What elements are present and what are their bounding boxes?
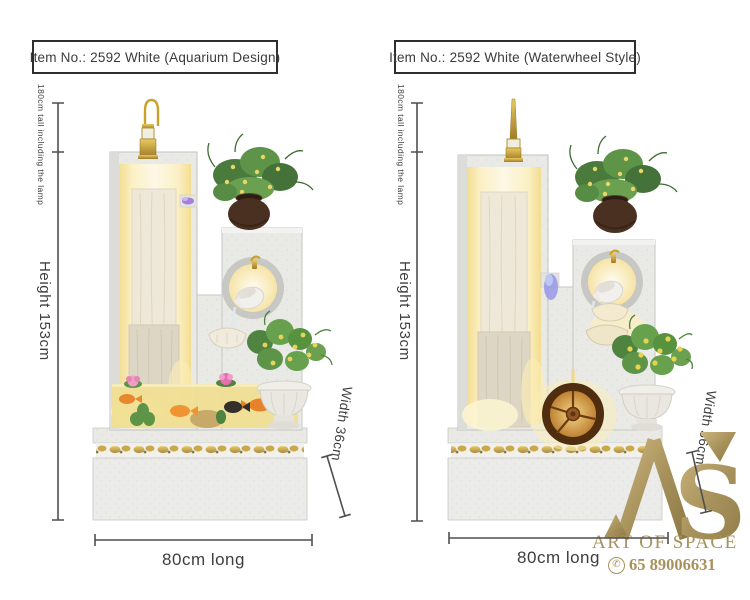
as-monogram-logo-icon: S — [596, 426, 744, 546]
item-title-left-text: Item No.: 2592 White (Aquarium Design) — [30, 50, 281, 65]
potted-plant — [208, 134, 313, 230]
brand-name: ART OF SPACE — [592, 532, 738, 554]
product-photo-aquarium-fountain — [85, 97, 333, 527]
height-dimension-left — [52, 103, 64, 520]
phone-circle-icon: ✆ — [608, 557, 625, 574]
monogram-s: S — [674, 444, 744, 546]
potted-plant — [570, 136, 677, 233]
phone-row: ✆ 65 89006631 — [608, 555, 716, 575]
total-height-label-right: 180cm tall including the lamp — [396, 84, 406, 216]
art-of-space-watermark: S ART OF SPACE ✆ 65 89006631 — [592, 426, 748, 578]
total-height-label-left: 180cm tall including the lamp — [36, 84, 46, 216]
item-title-right-text: Item No.: 2592 White (Waterwheel Style) — [389, 50, 641, 65]
length-dimension-left — [95, 534, 312, 546]
phone-number: 65 89006631 — [629, 555, 716, 575]
fountain-base — [93, 428, 307, 520]
gold-trim-band — [96, 443, 304, 458]
product-spec-image: Item No.: 2592 White (Aquarium Design) 1… — [0, 0, 750, 600]
length-label-left: 80cm long — [95, 550, 312, 570]
height-label-left: Height 153cm — [36, 261, 53, 356]
finial-lamp-icon — [504, 99, 523, 162]
height-label-right: Height 153cm — [396, 261, 413, 356]
gooseneck-lamp-icon — [138, 100, 158, 159]
item-title-left: Item No.: 2592 White (Aquarium Design) — [32, 40, 278, 74]
item-title-right: Item No.: 2592 White (Waterwheel Style) — [394, 40, 636, 74]
aquarium-fountain-illustration — [85, 97, 333, 527]
